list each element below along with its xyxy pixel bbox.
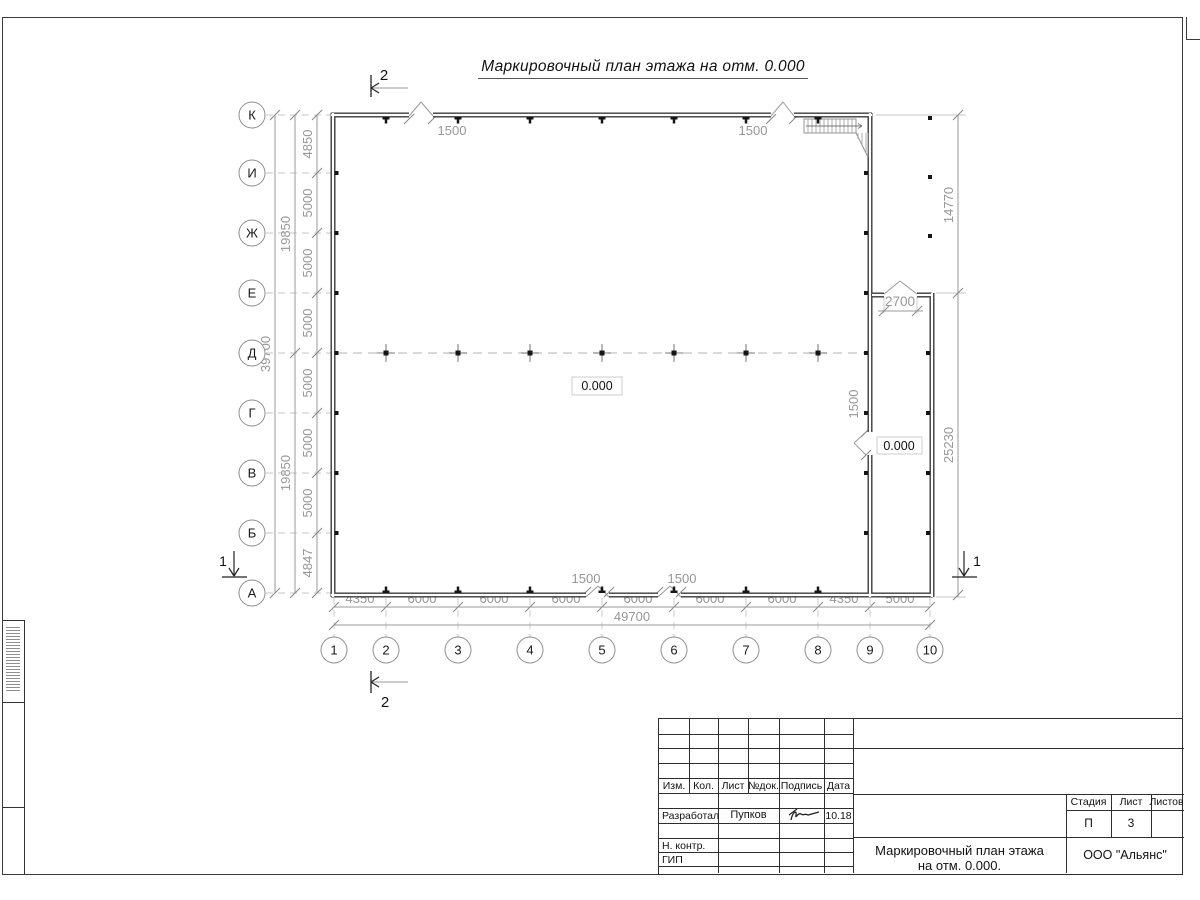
section-mark — [964, 568, 969, 576]
dim-label: 4850 — [300, 130, 315, 159]
column-mark — [815, 117, 822, 120]
column-mark — [926, 411, 930, 415]
elevation-label: 0.000 — [581, 379, 612, 393]
titleblock-line — [659, 793, 853, 794]
gate-symbol — [854, 443, 866, 455]
dim-label: 2700 — [885, 294, 915, 309]
developed-date: 10.18 — [824, 810, 853, 822]
column-mark — [817, 120, 820, 124]
titleblock-line — [659, 838, 853, 839]
column-mark — [817, 587, 820, 591]
dim-label: 4847 — [300, 549, 315, 578]
column-mark — [926, 531, 930, 535]
col-kol: Кол. — [689, 780, 718, 792]
section-mark — [371, 83, 379, 88]
section-mark — [234, 568, 239, 576]
dim-label: 1500 — [438, 123, 467, 138]
column-mark — [456, 351, 461, 356]
column-mark — [864, 291, 868, 295]
dim-label: 5000 — [300, 429, 315, 458]
column-mark — [816, 351, 821, 356]
axis-label: 7 — [742, 643, 749, 658]
gate-symbol — [771, 102, 783, 116]
section-label: 1 — [973, 553, 981, 569]
column-mark — [864, 471, 868, 475]
dim-label: 5000 — [300, 489, 315, 518]
column-mark — [528, 351, 533, 356]
column-mark — [673, 120, 676, 124]
section-mark — [229, 568, 234, 576]
column-mark — [745, 120, 748, 124]
column-mark — [864, 531, 868, 535]
column-mark — [864, 351, 868, 355]
column-mark — [529, 587, 532, 591]
dim-label: 5000 — [300, 309, 315, 338]
column-mark — [671, 591, 678, 594]
column-mark — [335, 471, 339, 475]
column-mark — [928, 234, 932, 238]
titleblock-line — [853, 837, 1184, 838]
title-block: Изм. Кол. Лист №док. Подпись Дата Разраб… — [658, 718, 1183, 875]
role-developed: Разработал — [662, 810, 719, 822]
doc-title-line1: Маркировочный план этажа — [853, 843, 1066, 858]
column-mark — [383, 591, 390, 594]
titleblock-line — [659, 748, 853, 749]
elevation-label: 0.000 — [883, 439, 914, 453]
stage-value: П — [1066, 816, 1111, 830]
column-mark — [335, 231, 339, 235]
titleblock-line — [659, 778, 853, 779]
organization: ООО "Альянс" — [1066, 848, 1184, 862]
column-mark — [455, 591, 462, 594]
gate-symbol — [409, 102, 421, 116]
column-mark — [743, 591, 750, 594]
column-mark — [335, 531, 339, 535]
axis-label: 9 — [866, 643, 873, 658]
titleblock-line — [824, 719, 825, 873]
axis-label: 2 — [382, 643, 389, 658]
column-mark — [744, 351, 749, 356]
column-mark — [457, 120, 460, 124]
axis-label: И — [247, 166, 256, 181]
dim-label: 1500 — [572, 571, 601, 586]
column-mark — [335, 291, 339, 295]
section-mark — [371, 677, 379, 682]
titleblock-line — [718, 719, 719, 873]
doc-title-line2: на отм. 0.000. — [853, 858, 1066, 873]
col-ndok: №док. — [748, 780, 779, 792]
dim-label: 19850 — [278, 455, 293, 491]
titleblock-line — [659, 852, 853, 853]
titleblock-line — [853, 748, 1184, 749]
section-mark — [959, 568, 964, 576]
section-label: 2 — [381, 694, 389, 711]
signature — [785, 808, 825, 824]
column-mark — [383, 117, 390, 120]
gate-symbol — [884, 281, 900, 294]
titleblock-line — [659, 866, 853, 867]
list-header: Лист — [1111, 796, 1151, 808]
titleblock-line — [779, 719, 780, 873]
dim-label: 1500 — [668, 571, 697, 586]
column-mark — [864, 231, 868, 235]
column-mark — [335, 171, 339, 175]
section-mark — [371, 682, 379, 687]
gate-symbol — [658, 586, 670, 597]
column-mark — [672, 351, 677, 356]
axis-label: 6 — [670, 643, 677, 658]
axis-label: 1 — [330, 643, 337, 658]
dim-label: 14770 — [941, 187, 956, 223]
column-mark — [928, 116, 932, 120]
titleblock-line — [1066, 810, 1184, 811]
axis-label: 4 — [526, 643, 533, 658]
axis-label: Ж — [246, 226, 258, 241]
col-podpis: Подпись — [779, 780, 824, 792]
titleblock-line — [659, 734, 853, 735]
axis-label: А — [248, 586, 257, 601]
axis-label: 8 — [814, 643, 821, 658]
column-mark — [928, 175, 932, 179]
column-mark — [926, 351, 930, 355]
section-label: 2 — [380, 67, 388, 84]
column-mark — [529, 120, 532, 124]
listov-header: Листов — [1149, 796, 1184, 808]
column-mark — [455, 117, 462, 120]
axis-label: 10 — [923, 643, 937, 658]
stage-header: Стадия — [1066, 796, 1111, 808]
titleblock-line — [659, 763, 853, 764]
axis-label: Б — [248, 526, 257, 541]
gate-symbol — [421, 102, 433, 116]
sheet-number: 3 — [1111, 816, 1151, 830]
dim-label: 5000 — [300, 369, 315, 398]
column-mark — [599, 117, 606, 120]
column-mark — [601, 587, 604, 591]
column-mark — [864, 171, 868, 175]
col-izm: Изм. — [659, 780, 689, 792]
axis-label: Г — [248, 406, 255, 421]
role-gip: ГИП — [662, 854, 683, 866]
dim-label: 1500 — [739, 123, 768, 138]
dim-label: 19850 — [278, 216, 293, 252]
column-mark — [601, 120, 604, 124]
axis-label: К — [248, 108, 256, 123]
column-mark — [815, 591, 822, 594]
axis-label: Е — [248, 286, 257, 301]
axis-label: В — [248, 466, 257, 481]
developer-name: Пупков — [718, 809, 779, 821]
column-mark — [673, 587, 676, 591]
column-mark — [527, 117, 534, 120]
gate-symbol — [783, 102, 794, 116]
column-mark — [743, 117, 750, 120]
axis-label: 3 — [454, 643, 461, 658]
col-list: Лист — [718, 780, 748, 792]
column-mark — [384, 351, 389, 356]
column-mark — [864, 411, 868, 415]
col-data: Дата — [824, 780, 853, 792]
section-label: 1 — [219, 553, 227, 569]
dim-label: 49700 — [614, 609, 650, 624]
column-mark — [335, 351, 339, 355]
axis-label: Д — [248, 346, 257, 361]
dim-label: 5000 — [300, 189, 315, 218]
column-mark — [335, 411, 339, 415]
gate-symbol — [586, 586, 598, 597]
column-mark — [745, 587, 748, 591]
axis-label: 5 — [598, 643, 605, 658]
column-mark — [385, 587, 388, 591]
dim-label: 1500 — [846, 390, 861, 419]
column-mark — [599, 591, 606, 594]
column-mark — [457, 587, 460, 591]
dim-label: 5000 — [300, 249, 315, 278]
section-mark — [371, 88, 379, 93]
column-mark — [600, 351, 605, 356]
gate-symbol — [900, 281, 917, 294]
column-mark — [527, 591, 534, 594]
column-mark — [385, 120, 388, 124]
role-ncontr: Н. контр. — [662, 840, 705, 852]
column-mark — [926, 471, 930, 475]
dim-label: 25230 — [941, 427, 956, 463]
column-mark — [671, 117, 678, 120]
